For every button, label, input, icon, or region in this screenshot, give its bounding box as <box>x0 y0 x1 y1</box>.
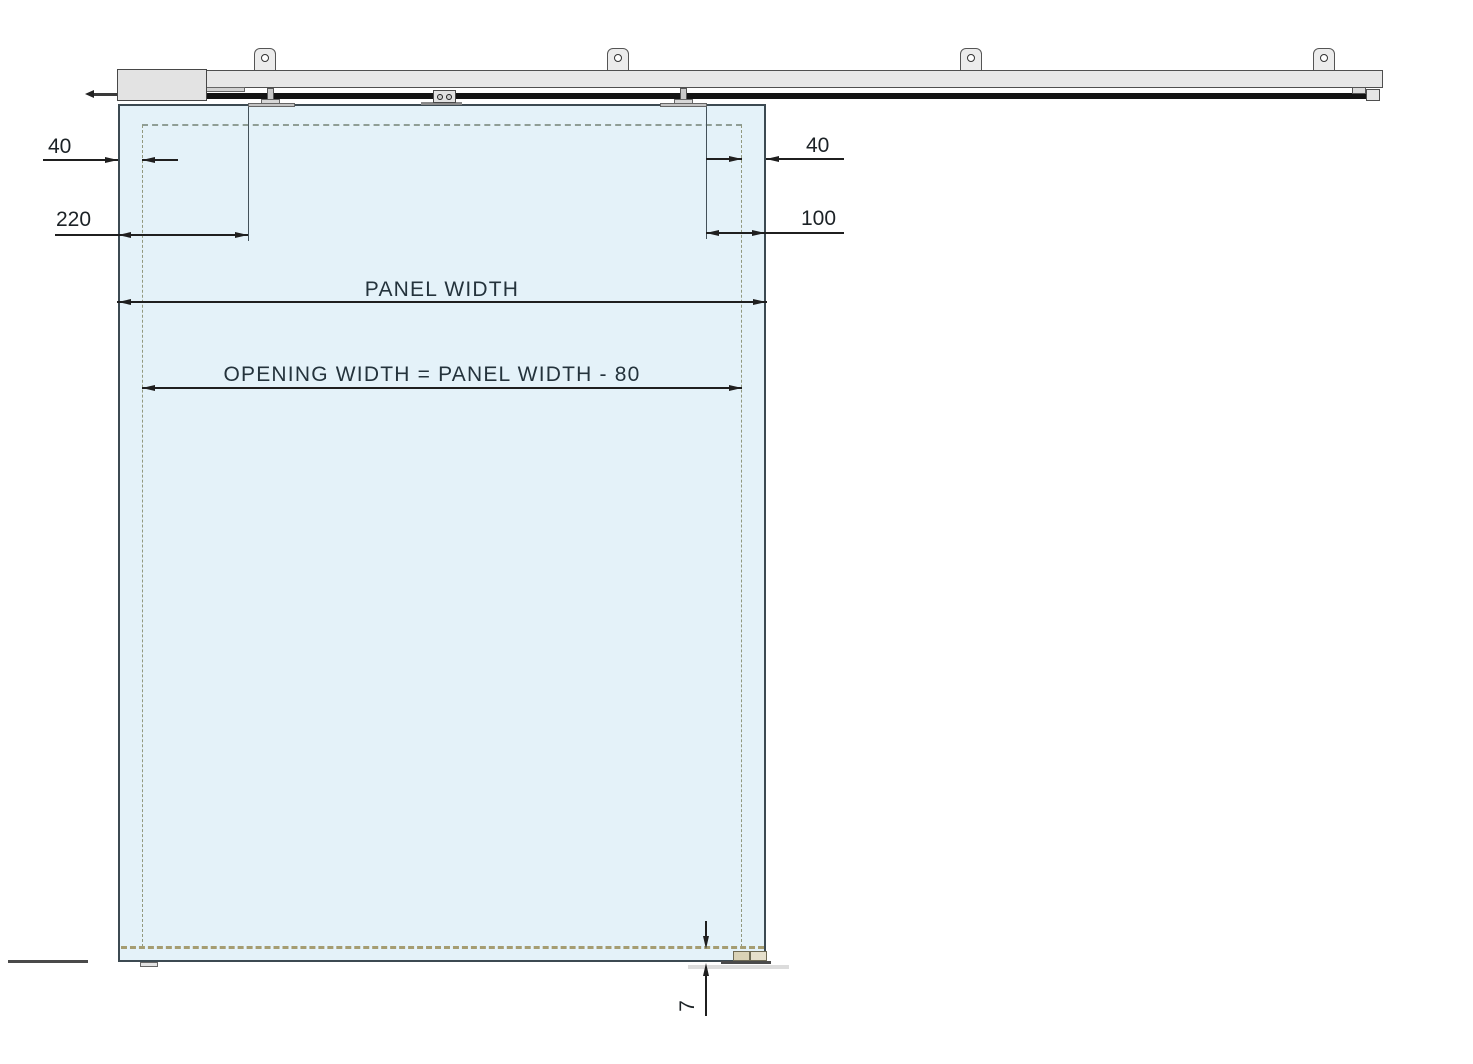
dim-arrow <box>142 385 155 391</box>
dim-line <box>705 975 707 1016</box>
screw-icon <box>446 94 452 100</box>
dim-left-glass-offset-label: 40 <box>48 136 71 158</box>
floor-line-left <box>8 960 88 963</box>
extension-line <box>248 107 249 241</box>
screw-icon <box>437 94 443 100</box>
end-stop-block <box>1352 87 1366 94</box>
damper-pin <box>92 93 119 96</box>
dim-right-glass-offset-label: 40 <box>806 135 829 157</box>
dim-right-carriage-label: 100 <box>801 208 836 230</box>
dim-arrow <box>703 936 709 949</box>
damper-pin-tip-icon <box>85 90 94 98</box>
opening-outline-left <box>142 125 143 947</box>
dim-panel-width-label: PANEL WIDTH <box>118 279 766 301</box>
trolley-clamp-plate <box>660 103 707 107</box>
opening-outline-top <box>142 124 742 126</box>
dim-arrow <box>729 156 742 162</box>
dim-arrow <box>105 157 118 163</box>
dim-line <box>706 232 844 234</box>
dim-floor-gap-label: 7 <box>677 995 699 1017</box>
rotated-digit: 7 <box>677 995 699 1017</box>
dim-line <box>142 387 742 389</box>
opening-outline-right <box>741 125 742 947</box>
dim-arrow <box>118 232 131 238</box>
dim-arrow <box>706 230 719 236</box>
track-end-cap <box>1366 89 1380 101</box>
dim-arrow <box>235 232 248 238</box>
floor-guide <box>733 951 750 961</box>
dim-left-carriage-label: 220 <box>56 209 91 231</box>
running-rail <box>207 93 1367 99</box>
floor-stop <box>140 962 158 967</box>
dim-line <box>117 301 767 303</box>
dim-arrow <box>118 299 131 305</box>
dim-opening-width-label: OPENING WIDTH = PANEL WIDTH - 80 <box>122 364 742 386</box>
extension-line <box>706 107 707 239</box>
technical-drawing: 40 220 40 100 PANEL WIDTH OPENING WIDTH … <box>0 0 1473 1064</box>
dim-line <box>705 921 707 937</box>
dim-line <box>55 234 248 236</box>
bracket-hole-icon <box>614 54 622 62</box>
soft-close-damper <box>117 69 207 101</box>
bracket-hole-icon <box>1320 54 1328 62</box>
dim-arrow <box>729 385 742 391</box>
rail-clamp <box>433 90 456 103</box>
damper-rod <box>205 87 245 92</box>
dim-arrow <box>752 230 765 236</box>
bottom-seal-dashed <box>121 946 764 949</box>
trolley-clamp-plate <box>248 103 295 107</box>
bracket-hole-icon <box>261 54 269 62</box>
glass-panel <box>118 104 766 962</box>
bracket-hole-icon <box>967 54 975 62</box>
dim-arrow <box>766 156 779 162</box>
floor-guide-base <box>721 961 771 964</box>
dim-arrow <box>142 157 155 163</box>
floor-guide <box>750 951 767 961</box>
track-profile <box>205 70 1383 88</box>
dim-arrow <box>753 299 766 305</box>
